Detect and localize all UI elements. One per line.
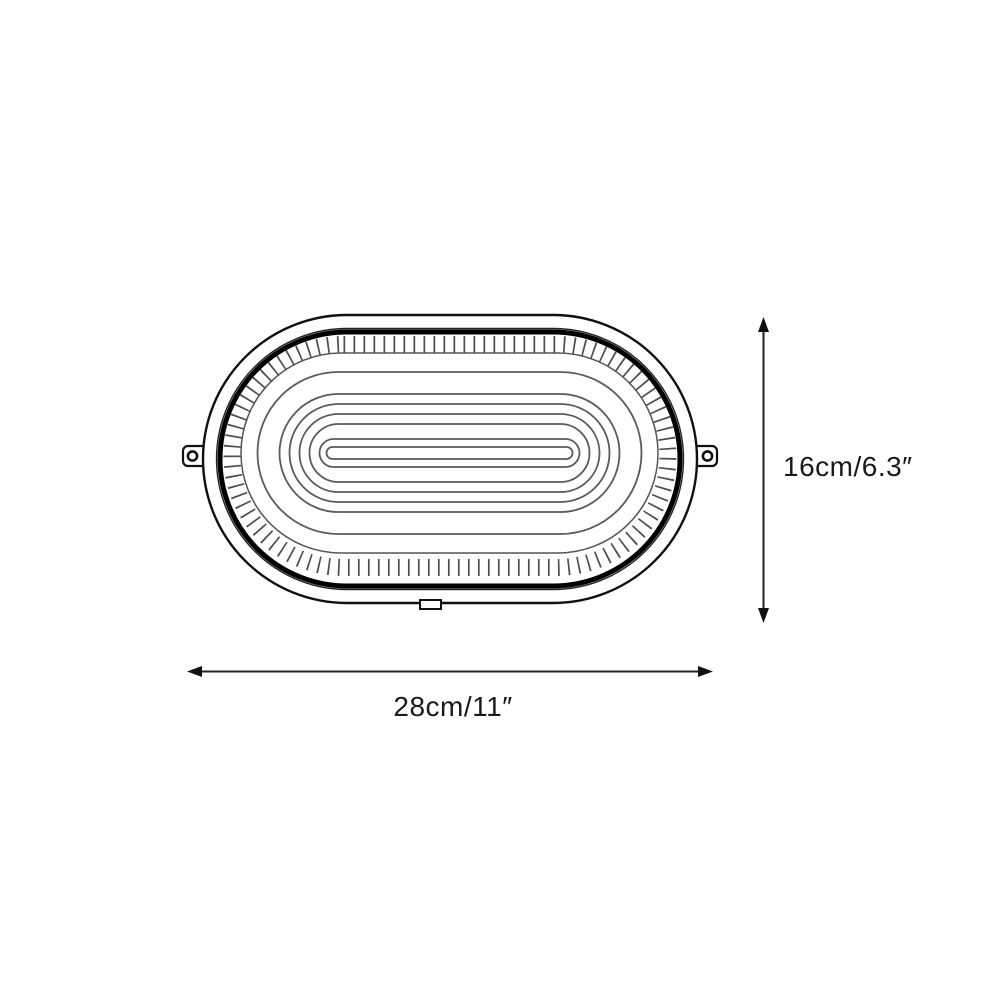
diagram-canvas: 16cm/6.3″ 28cm/11″ [0, 0, 1000, 1000]
arrow-up-icon [758, 317, 769, 332]
bulkhead-lamp-drawing [183, 315, 717, 609]
bottom-tab-icon [420, 600, 441, 609]
height-dimension-label: 16cm/6.3″ [783, 451, 913, 482]
height-dimension: 16cm/6.3″ [758, 317, 913, 623]
arrow-left-icon [187, 666, 202, 677]
arrow-down-icon [758, 608, 769, 623]
width-dimension: 28cm/11″ [187, 666, 713, 722]
width-dimension-label: 28cm/11″ [393, 691, 512, 722]
arrow-right-icon [698, 666, 713, 677]
bulkhead-lamp-dimension-diagram: 16cm/6.3″ 28cm/11″ [0, 0, 1000, 1000]
